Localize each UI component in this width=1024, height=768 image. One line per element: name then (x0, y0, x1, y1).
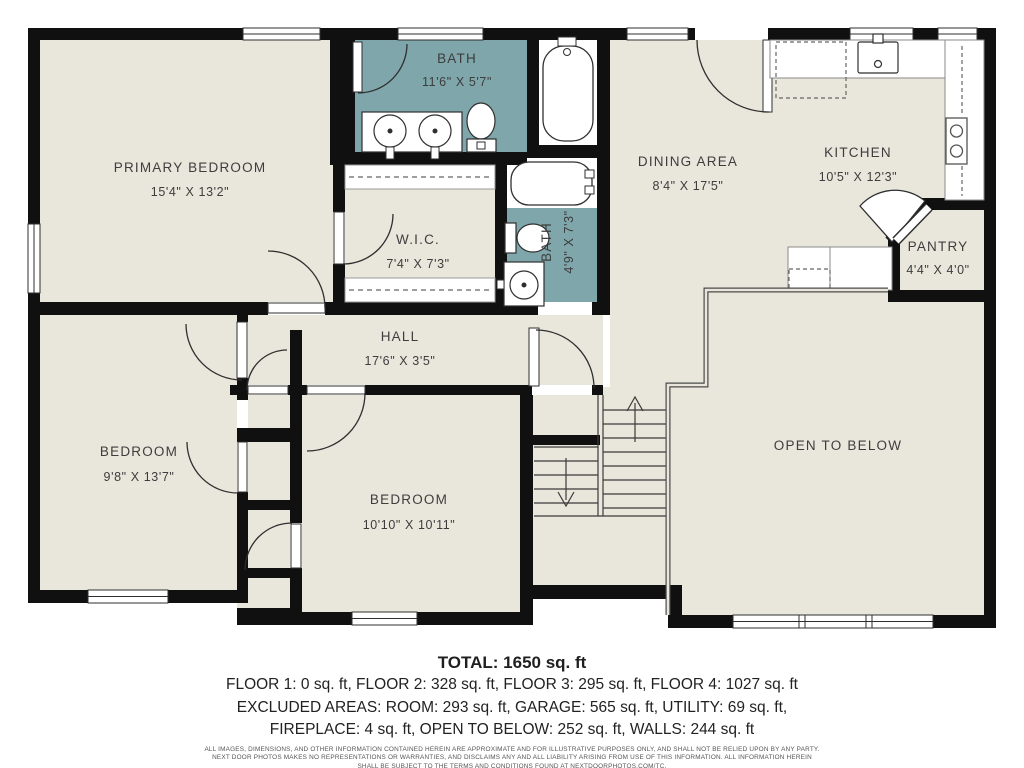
burner-icon (951, 125, 963, 137)
door-leaf (248, 386, 288, 394)
room-dims: 10'5" X 12'3" (819, 170, 897, 184)
wall-segment (527, 28, 539, 145)
door-opening (538, 302, 592, 315)
room-label: PANTRY (908, 239, 969, 254)
wall-segment (533, 585, 673, 599)
burner-icon (951, 145, 963, 157)
wall-segment (290, 330, 302, 523)
toilet-flush (477, 142, 485, 149)
room-label: HALL (381, 329, 420, 344)
wall-segment (520, 385, 533, 615)
room-label: BATH (539, 222, 554, 262)
room-dims: 4'9" X 7'3" (562, 210, 576, 273)
sink-drain-icon (522, 283, 527, 288)
room-dims: 11'6" X 5'7" (422, 75, 492, 89)
disclaimer-line: SHALL BE SUBJECT TO THE TERMS AND CONDIT… (0, 763, 1024, 768)
tub-faucet-icon (585, 186, 594, 194)
excluded-areas-text-2: FIREPLACE: 4 sq. ft, OPEN TO BELOW: 252 … (0, 719, 1024, 742)
faucet-icon (386, 147, 394, 159)
door-opening (695, 28, 768, 40)
door-leaf (291, 524, 301, 568)
disclaimer-line: NEXT DOOR PHOTOS MAKES NO REPRESENTATION… (0, 754, 1024, 763)
room-label: OPEN TO BELOW (774, 438, 902, 453)
wall-segment (597, 28, 610, 315)
excluded-areas-text-1: EXCLUDED AREAS: ROOM: 293 sq. ft, GARAGE… (0, 697, 1024, 720)
floor-areas-text: FLOOR 1: 0 sq. ft, FLOOR 2: 328 sq. ft, … (0, 674, 1024, 697)
room-label: BATH (437, 51, 477, 66)
faucet-icon (873, 34, 883, 43)
room-label: DINING AREA (638, 154, 738, 169)
room-dims: 17'6" X 3'5" (365, 354, 436, 368)
toilet-tank (505, 223, 516, 253)
total-area-text: TOTAL: 1650 sq. ft (0, 652, 1024, 674)
bathtub-icon (543, 46, 593, 141)
room-label: BEDROOM (100, 444, 178, 459)
floor-plan-page: PRIMARY BEDROOM 15'4" X 13'2" BATH 11'6"… (0, 0, 1024, 768)
door-leaf (353, 42, 362, 92)
room-dims: 4'4" X 4'0" (906, 263, 969, 277)
door-leaf (334, 212, 344, 264)
room-dims: 9'8" X 13'7" (104, 470, 175, 484)
room-label: KITCHEN (824, 145, 892, 160)
tub-faucet-icon (558, 37, 576, 46)
door-leaf (237, 322, 247, 378)
wall-segment (888, 290, 984, 302)
room-label: BEDROOM (370, 492, 448, 507)
door-opening (532, 385, 592, 395)
disclaimer-line: ALL IMAGES, DIMENSIONS, AND OTHER INFORM… (0, 746, 1024, 755)
tub-faucet-icon (585, 170, 594, 178)
wall-segment (330, 28, 355, 152)
bathtub-icon (511, 162, 592, 205)
exterior-patch (28, 603, 237, 628)
faucet-icon (497, 280, 504, 289)
wall-segment (527, 145, 597, 158)
wall-segment (533, 435, 600, 445)
wall-segment (28, 28, 40, 603)
wall-segment (984, 28, 996, 628)
sink-drain-icon (388, 129, 393, 134)
door-leaf (307, 386, 365, 394)
door-leaf (268, 303, 325, 313)
exterior-patch (533, 599, 668, 628)
door-opening (237, 400, 248, 428)
wall-segment (28, 28, 984, 40)
room-dims: 15'4" X 13'2" (151, 185, 229, 199)
wall-segment (290, 568, 302, 618)
floor-plan-drawing: PRIMARY BEDROOM 15'4" X 13'2" BATH 11'6"… (0, 0, 1024, 645)
room-label: PRIMARY BEDROOM (114, 160, 267, 175)
kitchen-sink-icon (858, 42, 898, 73)
sink-drain-icon (433, 129, 438, 134)
door-leaf (238, 442, 247, 492)
toilet-icon (467, 103, 495, 139)
disclaimer: ALL IMAGES, DIMENSIONS, AND OTHER INFORM… (0, 746, 1024, 768)
faucet-icon (431, 147, 439, 159)
room-dims: 10'10" X 10'11" (363, 518, 456, 532)
room-floors (40, 40, 984, 617)
area-summary: TOTAL: 1650 sq. ft FLOOR 1: 0 sq. ft, FL… (0, 652, 1024, 768)
room-dims: 8'4" X 17'5" (653, 179, 724, 193)
room-label: W.I.C. (396, 232, 440, 247)
door-leaf (529, 328, 539, 386)
room-dims: 7'4" X 7'3" (386, 257, 449, 271)
